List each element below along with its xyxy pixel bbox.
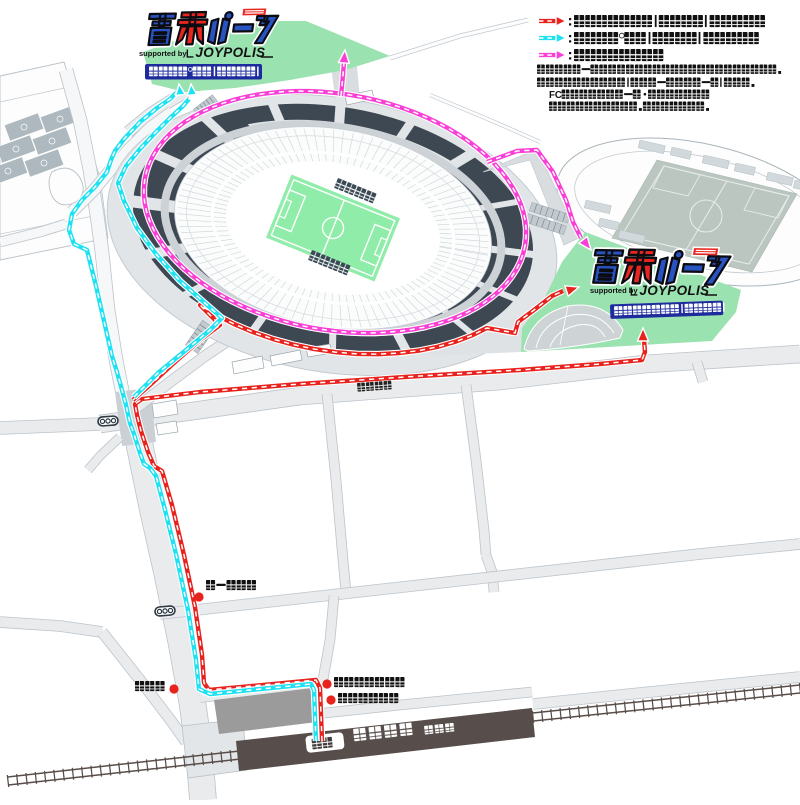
svg-text:supported by: supported by (139, 49, 187, 58)
svg-text:JOYPOLIS: JOYPOLIS (195, 45, 265, 60)
svg-text:JOYPOLIS: JOYPOLIS (639, 283, 709, 298)
svg-text:FC: FC (549, 90, 562, 101)
